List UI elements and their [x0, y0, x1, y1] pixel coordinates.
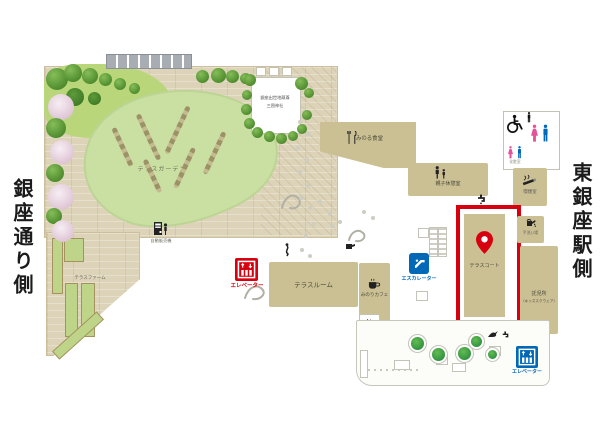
kettle-icon	[344, 242, 356, 251]
tree-icon	[48, 184, 74, 210]
smoking-room-top-label: 喫煙室	[513, 190, 547, 195]
tree-icon	[46, 118, 66, 138]
shrine-label-line2: 三囲神社	[251, 103, 299, 108]
tree-icon	[241, 104, 252, 115]
tree-icon	[99, 73, 112, 86]
stepping-stone	[338, 220, 342, 224]
stepping-stone	[318, 200, 322, 204]
stepping-stone	[371, 216, 375, 220]
sign-box	[416, 291, 428, 301]
terrace-court-label: テラスコート	[461, 263, 508, 269]
pergola	[106, 54, 192, 69]
tree-icon	[196, 70, 209, 83]
wheelchair-icon	[505, 114, 526, 134]
tree-icon	[82, 68, 98, 84]
tree-icon	[264, 131, 275, 142]
terrace-table	[452, 363, 466, 372]
tree-icon	[302, 110, 312, 120]
stepping-stone	[298, 170, 302, 174]
sculpture-icon	[283, 243, 293, 257]
escalator-shaft	[429, 227, 438, 257]
oyako-rest-room	[408, 163, 488, 196]
escalator-icon	[409, 253, 429, 274]
farm-planter	[52, 238, 63, 294]
stepping-stone	[299, 196, 303, 200]
stepping-stone	[296, 146, 300, 150]
terrace-room-label: テラスルーム	[269, 281, 358, 289]
tree-icon	[114, 78, 126, 90]
planter-tree-icon	[458, 347, 471, 360]
stepping-stone	[298, 120, 302, 124]
restroom-small-label: 化粧室	[499, 160, 531, 165]
tree-icon	[226, 70, 239, 83]
kids-square-label-line1: 託児所	[518, 291, 560, 297]
tree-icon	[242, 90, 252, 100]
stepping-stone	[330, 224, 334, 228]
vending-machine-label: 自動販売機	[134, 238, 188, 243]
elevator-left-label: エレベーター	[222, 283, 272, 290]
male-restroom-icon-small	[516, 146, 523, 159]
minori-cafe-label: みのりカフェ	[358, 293, 391, 299]
coffee-icon	[368, 278, 381, 290]
stepping-stone	[362, 210, 366, 214]
female-restroom-icon-small	[507, 146, 514, 159]
planter-tree-icon	[432, 348, 445, 361]
tree-icon	[48, 94, 74, 120]
tree-icon	[304, 88, 314, 98]
shrine-structure	[256, 67, 266, 76]
person-icon-small-black	[526, 112, 532, 123]
cigarette-icon	[521, 173, 537, 186]
stepping-stone	[305, 158, 309, 162]
terrace-edge-dots	[368, 369, 420, 371]
stepping-stone	[308, 206, 312, 210]
shrine-structure	[282, 67, 292, 76]
location-pin-icon[interactable]	[476, 231, 493, 254]
tree-icon	[288, 131, 298, 141]
sign-box	[418, 228, 429, 238]
stepping-stone	[308, 254, 312, 258]
tree-icon	[64, 64, 82, 82]
planter-tree-icon	[411, 337, 424, 350]
terrace-farm-label: テラスファーム	[66, 276, 114, 281]
bird-sculpture-icon	[487, 329, 499, 339]
tree-icon	[50, 140, 74, 164]
elevator-right-label: エレベーター	[503, 369, 551, 375]
shrine-label-line1: 銀座出世地蔵尊	[251, 95, 299, 100]
tree-icon	[211, 68, 226, 83]
kids-square-label-line2: （キッズスクウェア）	[517, 299, 561, 303]
oyako-rest-label: 親子休憩室	[411, 181, 485, 187]
vending-machine-icon	[153, 221, 169, 237]
planter-tree-icon	[488, 350, 497, 359]
tree-icon	[129, 83, 140, 94]
stepping-stone	[312, 222, 316, 226]
farm-planter	[64, 238, 84, 262]
tree-icon	[88, 92, 101, 105]
stepping-stone	[300, 248, 304, 252]
shrine-structure	[269, 67, 279, 76]
tree-icon	[252, 127, 263, 138]
male-restroom-icon	[541, 124, 550, 143]
terrace-counter	[360, 350, 368, 378]
tree-icon	[276, 133, 287, 144]
stepping-stone	[304, 234, 308, 238]
stepping-stone	[306, 184, 310, 188]
escalator-shaft	[438, 227, 447, 257]
minoru-dining-label: みのる食堂	[356, 136, 402, 143]
faucet-icon	[476, 194, 488, 205]
stepping-stone	[328, 212, 332, 216]
floor-map: 銀座通り側 東銀座駅側 テラスファーム テラスガーデン	[0, 0, 600, 439]
escalator-label: エスカレーター	[396, 276, 442, 282]
tree-icon	[46, 164, 64, 182]
elevator-left-icon	[235, 258, 258, 281]
map-canvas: テラスファーム テラスガーデン 銀座出世地蔵尊 三囲神社 自動販売機	[0, 0, 600, 439]
elevator-right-icon	[516, 346, 538, 368]
hand-wash-label: 手洗い場	[512, 231, 549, 236]
planter-tree-icon	[471, 336, 482, 347]
terrace-court-highlight: テラスコート	[456, 205, 521, 334]
tree-icon	[244, 74, 256, 86]
female-restroom-icon	[530, 124, 539, 143]
watering-icon	[524, 218, 536, 229]
tree-icon	[52, 220, 74, 242]
faucet-icon-2	[501, 331, 511, 340]
parent-child-icon	[433, 166, 448, 179]
stepping-stone	[306, 132, 310, 136]
